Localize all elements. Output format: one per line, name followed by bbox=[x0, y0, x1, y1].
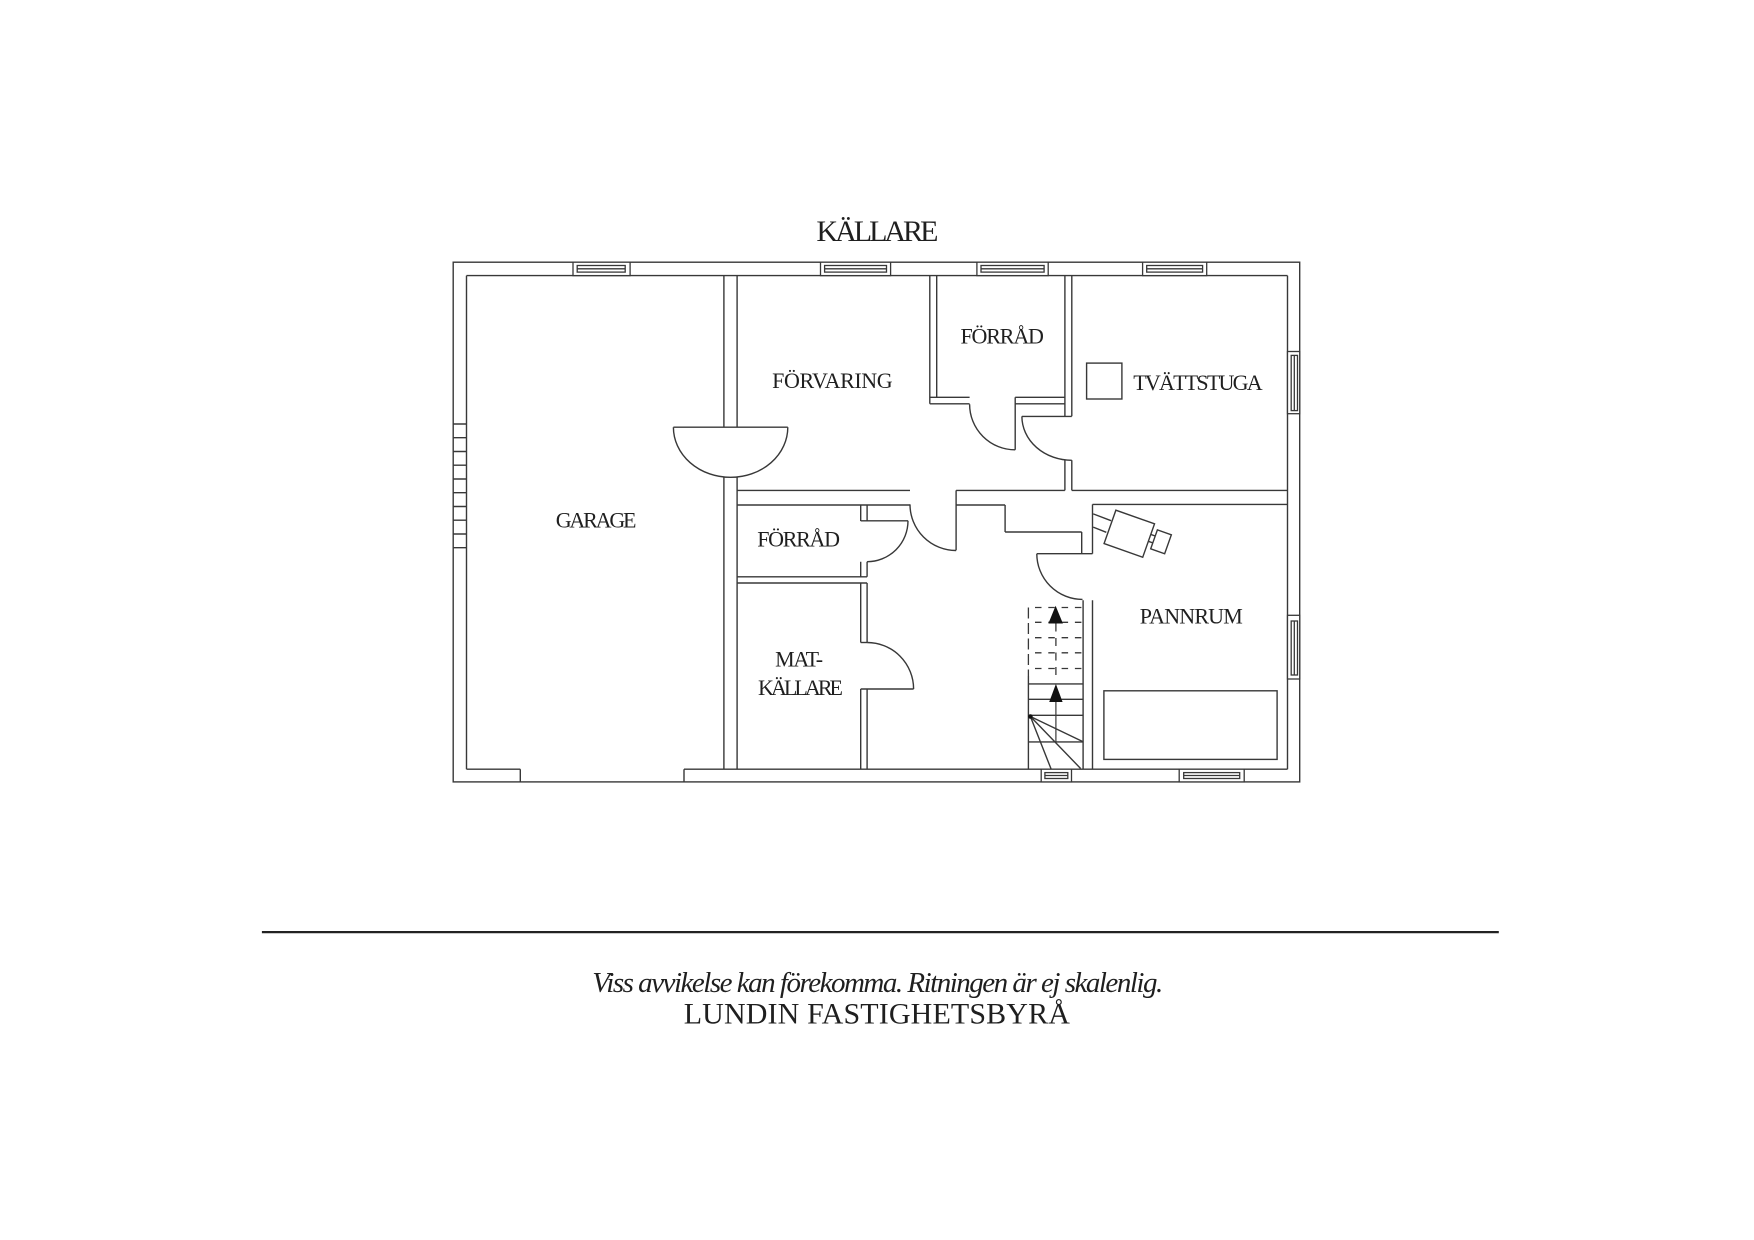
svg-text:TVÄTTSTUGA: TVÄTTSTUGA bbox=[1133, 370, 1263, 395]
svg-text:MAT-: MAT- bbox=[775, 646, 823, 671]
svg-text:LUNDIN FASTIGHETSBYRÅ: LUNDIN FASTIGHETSBYRÅ bbox=[684, 997, 1071, 1030]
svg-text:FÖRRÅD: FÖRRÅD bbox=[960, 324, 1043, 349]
svg-text:FÖRVARING: FÖRVARING bbox=[772, 368, 893, 393]
svg-text:KÄLLARE: KÄLLARE bbox=[758, 675, 843, 700]
svg-text:GARAGE: GARAGE bbox=[556, 507, 637, 532]
svg-text:KÄLLARE: KÄLLARE bbox=[816, 215, 938, 248]
svg-text:FÖRRÅD: FÖRRÅD bbox=[757, 527, 840, 552]
svg-text:Viss avvikelse kan förekomma.: Viss avvikelse kan förekomma. Ritningen … bbox=[592, 967, 1163, 999]
svg-text:PANNRUM: PANNRUM bbox=[1140, 603, 1243, 628]
